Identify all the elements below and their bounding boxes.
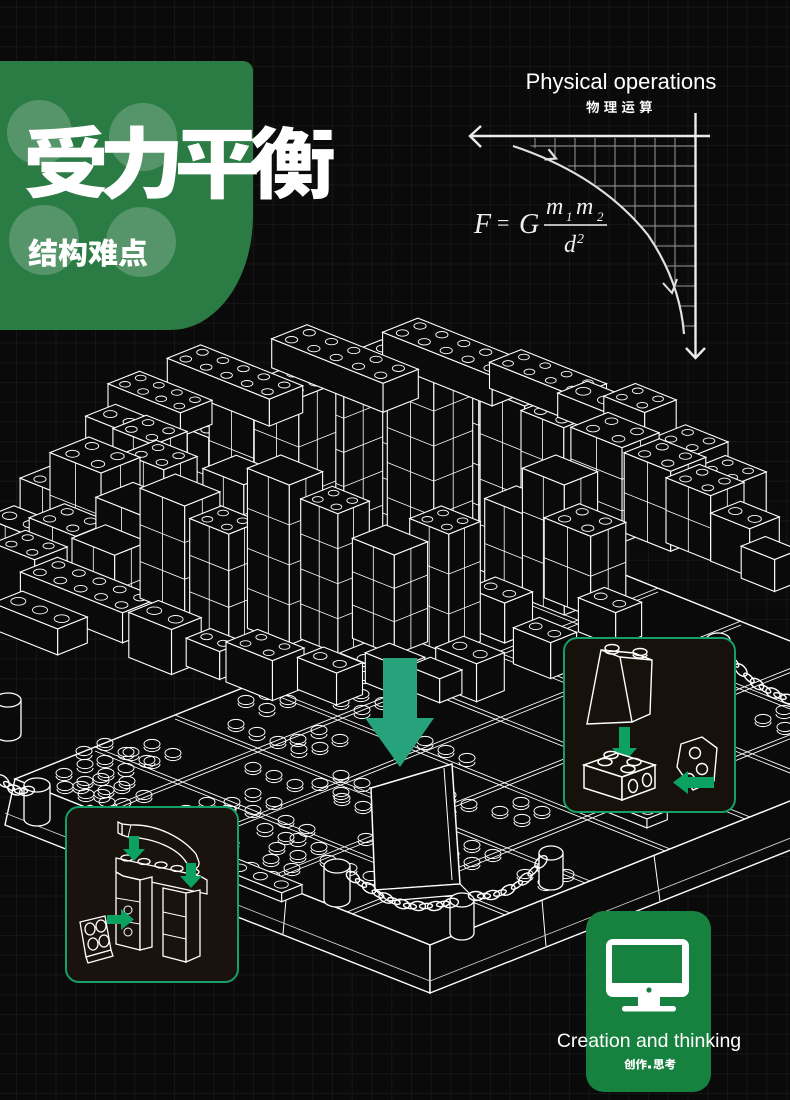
svg-text:Creation and thinking: Creation and thinking <box>557 1030 741 1052</box>
